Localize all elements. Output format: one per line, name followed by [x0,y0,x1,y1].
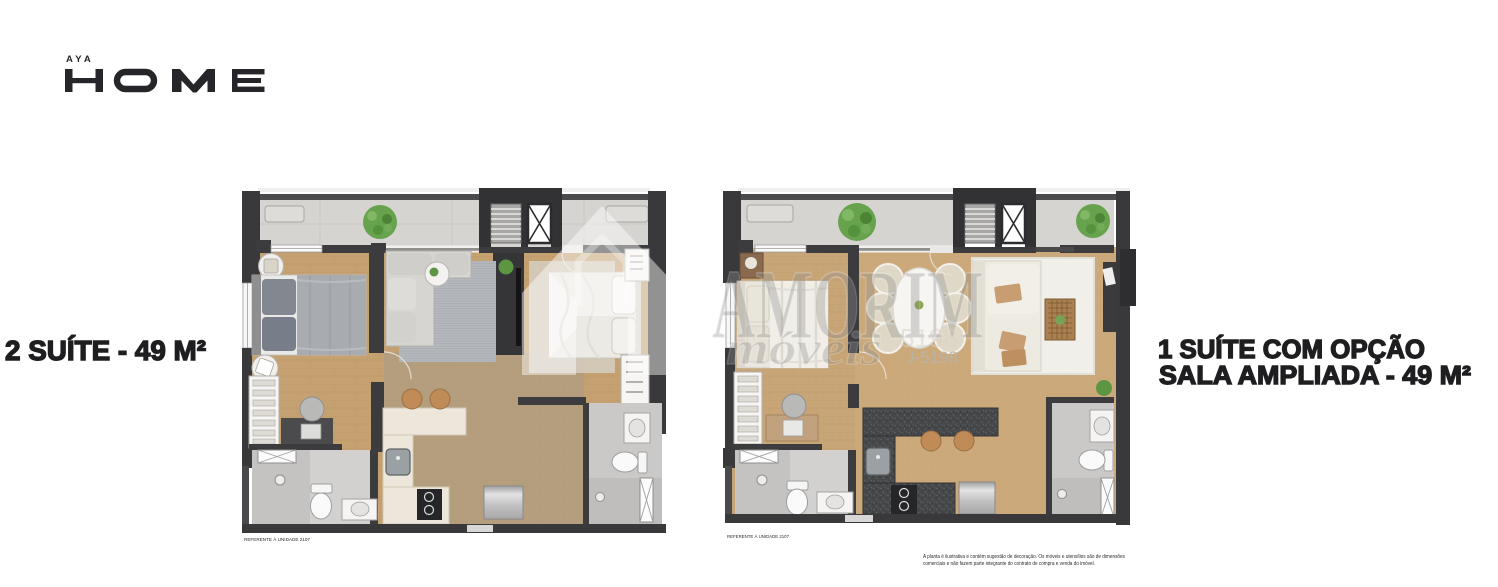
svg-text:comerciais e não fazem parte i: comerciais e não fazem parte integrante … [923,561,1095,567]
svg-text:A planta é ilustrativa e conté: A planta é ilustrativa e contém sugestão… [923,554,1125,560]
svg-text:REFERENTE À UNIDADE 2107: REFERENTE À UNIDADE 2107 [244,536,310,542]
svg-text:AYA: AYA [66,54,94,65]
svg-text:SALA AMPLIADA - 49 M²: SALA AMPLIADA - 49 M² [1159,360,1471,390]
svg-text:2 SUÍTE - 49 M²: 2 SUÍTE - 49 M² [5,335,206,366]
svg-text:móveis: móveis [726,322,882,375]
svg-text:5198: 5198 [900,323,958,353]
svg-text:REFERENTE À UNIDADE 2107: REFERENTE À UNIDADE 2107 [727,533,789,539]
